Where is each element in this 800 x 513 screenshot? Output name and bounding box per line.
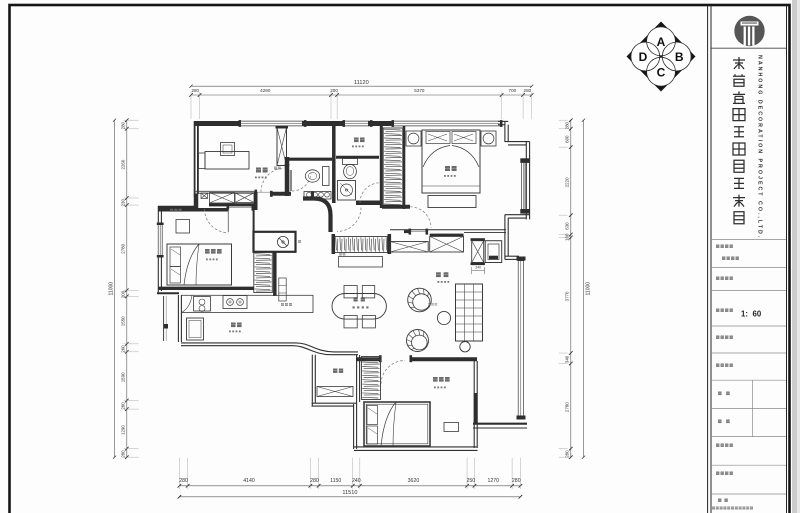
svg-text:2780: 2780 xyxy=(564,402,569,412)
svg-text:11120: 11120 xyxy=(354,80,369,86)
svg-text:2780: 2780 xyxy=(120,243,125,253)
svg-text:1290: 1290 xyxy=(120,425,125,435)
svg-text:700: 700 xyxy=(509,88,517,93)
svg-text:3770: 3770 xyxy=(564,291,569,301)
svg-text:1270: 1270 xyxy=(488,478,500,484)
svg-text:C: C xyxy=(657,66,666,80)
svg-text:280: 280 xyxy=(564,121,569,129)
svg-text:5370: 5370 xyxy=(414,88,425,93)
svg-text:280: 280 xyxy=(512,478,521,484)
svg-text:630: 630 xyxy=(564,222,569,230)
svg-text:600: 600 xyxy=(564,135,569,143)
svg-text:2220: 2220 xyxy=(564,177,569,187)
svg-text:340: 340 xyxy=(564,355,569,363)
svg-text:280: 280 xyxy=(310,478,319,484)
svg-text:3620: 3620 xyxy=(408,478,420,484)
svg-text:280: 280 xyxy=(120,450,125,458)
svg-text:260: 260 xyxy=(120,345,125,353)
svg-text:240: 240 xyxy=(475,266,481,270)
svg-text:280: 280 xyxy=(179,478,188,484)
svg-text:1590: 1590 xyxy=(120,372,125,382)
svg-text:A: A xyxy=(657,35,666,49)
svg-text:4290: 4290 xyxy=(260,88,271,93)
svg-text:100: 100 xyxy=(564,233,569,241)
svg-text:60: 60 xyxy=(753,310,762,319)
svg-text:230: 230 xyxy=(120,199,125,207)
svg-text:250: 250 xyxy=(466,478,475,484)
svg-text:11000: 11000 xyxy=(108,282,114,296)
svg-text:200: 200 xyxy=(120,290,125,298)
svg-text:240: 240 xyxy=(352,478,361,484)
svg-text:1:: 1: xyxy=(741,310,748,319)
svg-text:NANHONG DECORATION PROJECT CO.: NANHONG DECORATION PROJECT CO.,LTD. xyxy=(757,55,763,239)
svg-text:280: 280 xyxy=(120,121,125,129)
svg-text:B: B xyxy=(675,50,684,64)
svg-text:4140: 4140 xyxy=(243,478,255,484)
svg-text:280: 280 xyxy=(191,88,199,93)
svg-text:11510: 11510 xyxy=(342,490,357,496)
svg-text:D: D xyxy=(639,50,648,64)
svg-text:280: 280 xyxy=(120,402,125,410)
svg-text:1550: 1550 xyxy=(120,316,125,326)
svg-text:280: 280 xyxy=(524,88,532,93)
svg-text:2260: 2260 xyxy=(120,159,125,169)
svg-text:1150: 1150 xyxy=(330,478,341,484)
svg-text:11000: 11000 xyxy=(586,282,592,296)
svg-text:200: 200 xyxy=(330,88,338,93)
svg-text:280: 280 xyxy=(564,450,569,458)
